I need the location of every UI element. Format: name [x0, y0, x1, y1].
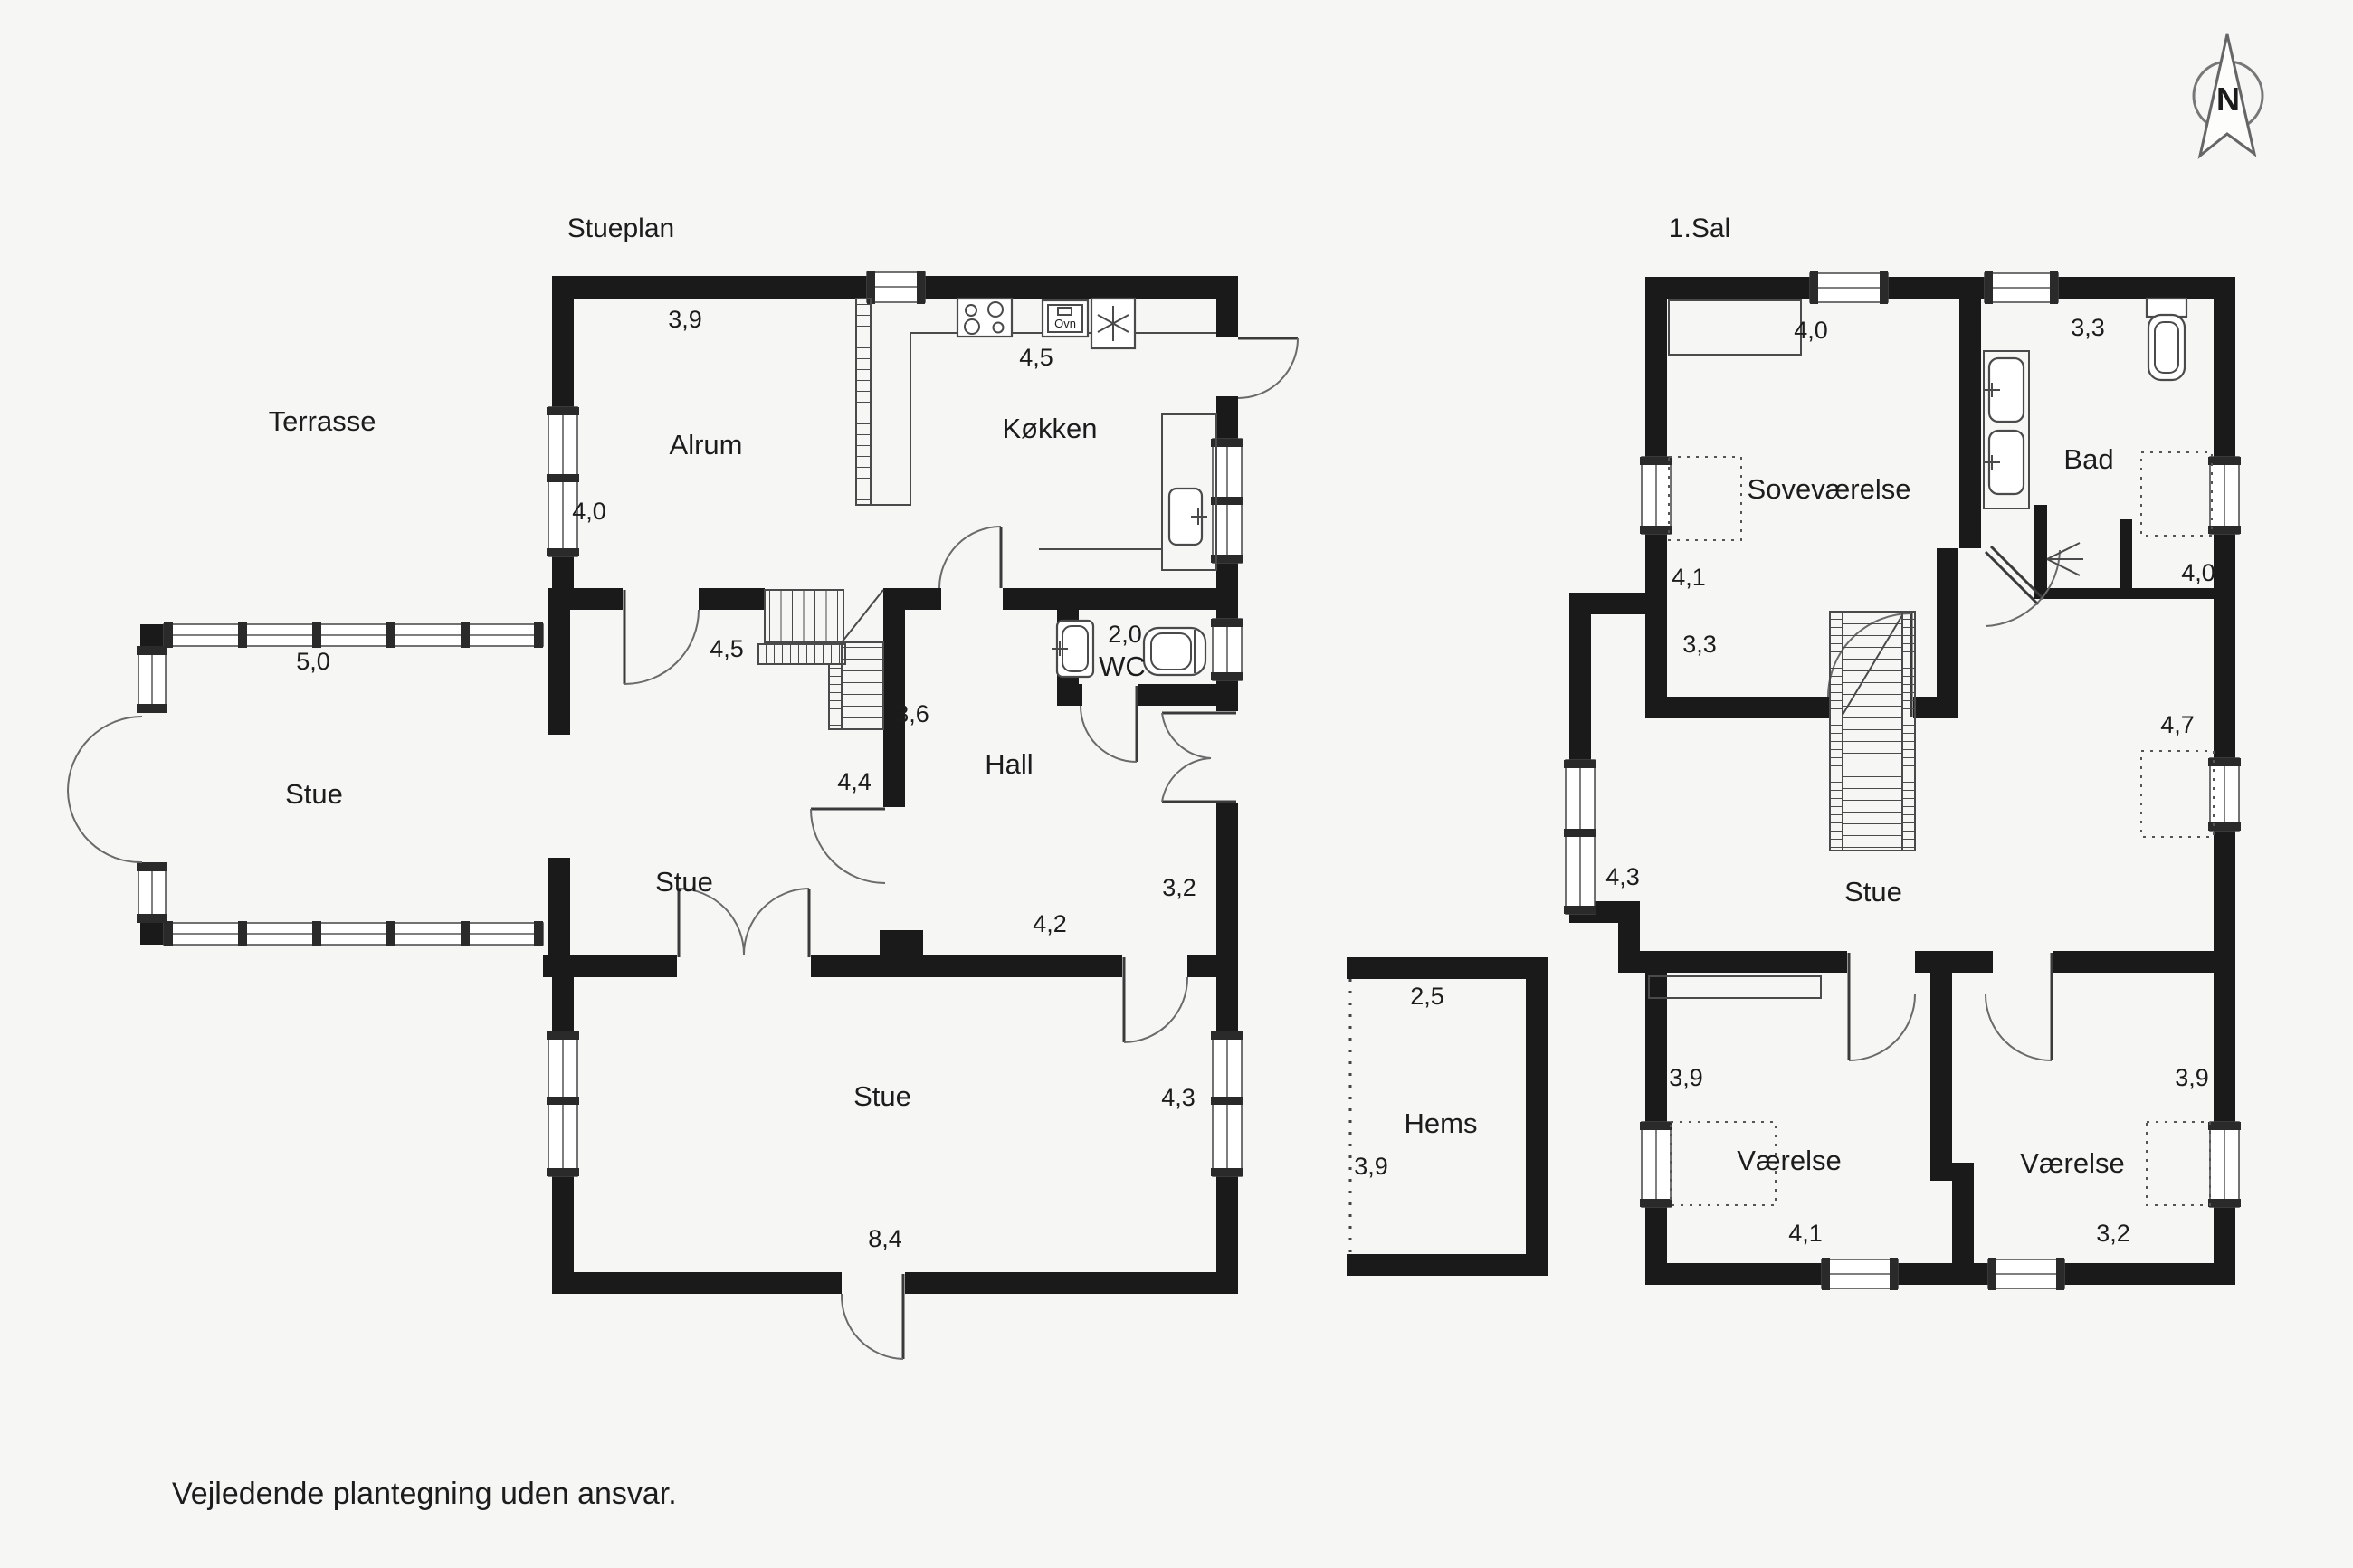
glass-stue-label: Stue	[285, 778, 343, 810]
dim-sove-top: 4,0	[1794, 317, 1828, 344]
dim-hall-bottom: 4,2	[1033, 910, 1067, 937]
floorplan-sheet: Stueplan 1.Sal Terrasse N	[0, 0, 2353, 1568]
terrasse-label: Terrasse	[269, 405, 376, 437]
terrace-double-door	[68, 717, 142, 862]
hall-label: Hall	[985, 748, 1033, 780]
skylight-bad	[2141, 452, 2212, 536]
door-kitchen-inner	[939, 527, 1003, 610]
shelf-divider	[856, 299, 871, 505]
stairs-sal	[1830, 612, 1915, 851]
door-vaerelse-left	[1847, 951, 1915, 1060]
bad-toilet-icon	[2147, 299, 2186, 380]
dim-bottom-stue: 8,4	[868, 1225, 902, 1252]
vaerelse-right-label: Værelse	[2020, 1147, 2124, 1179]
glass-stue-window-band-top	[164, 622, 543, 648]
window-sal-stue-left	[1564, 760, 1596, 914]
oven-icon: Ovn	[1043, 300, 1088, 337]
double-door-stue	[677, 889, 811, 977]
dim-hems-left: 3,9	[1354, 1153, 1388, 1180]
dim-glass-top: 5,0	[296, 648, 330, 675]
window-kitchen-top	[867, 271, 925, 304]
stueplan-title: Stueplan	[567, 214, 674, 243]
floorplan-drawing: Stueplan 1.Sal Terrasse N	[0, 0, 2353, 1568]
front-double-door	[1162, 711, 1238, 803]
sove-label: Soveværelse	[1748, 473, 1911, 505]
wc-label: WC	[1099, 651, 1146, 682]
mid-stue-label: Stue	[655, 866, 713, 898]
hems-label: Hems	[1405, 1107, 1478, 1139]
sal-title: 1.Sal	[1669, 214, 1730, 243]
dim-alrum-top: 3,9	[668, 306, 702, 333]
dim-bottom-stue-right: 4,3	[1161, 1084, 1196, 1111]
bad-label: Bad	[2063, 443, 2113, 475]
door-wc	[1081, 684, 1138, 762]
hems-plan: 2,5 Hems 3,9	[1347, 957, 1548, 1276]
dim-hems-top: 2,5	[1410, 983, 1444, 1010]
dim-vaerelse-left-bottom: 4,1	[1788, 1220, 1823, 1247]
north-arrow-icon: N	[2194, 34, 2262, 156]
kokken-label: Køkken	[1002, 413, 1097, 444]
dim-kokken-top: 4,5	[1019, 344, 1053, 371]
sove-closet	[1669, 300, 1801, 355]
vaerelse-left-label: Værelse	[1737, 1145, 1841, 1176]
fridge-icon	[1091, 299, 1135, 348]
dim-sove-left: 4,1	[1672, 564, 1706, 591]
dim-sal-stue-left: 4,3	[1605, 863, 1640, 890]
window-sove-left	[1640, 457, 1672, 534]
window-wc-right	[1211, 619, 1243, 680]
oven-label: Ovn	[1054, 317, 1076, 330]
dim-bad-top: 3,3	[2071, 314, 2105, 341]
window-alrum-left	[547, 407, 579, 556]
alrum-label: Alrum	[670, 429, 743, 461]
kitchen-sink-icon	[1162, 414, 1216, 570]
glass-stue-window-band-bottom	[164, 921, 543, 946]
north-label: N	[2216, 81, 2240, 118]
dim-sal-stue-right: 4,7	[2160, 711, 2195, 738]
dim-stair: 3,6	[895, 700, 929, 727]
door-bottom-stue-exterior	[842, 1272, 905, 1359]
toilet-icon	[1144, 628, 1205, 675]
door-vaerelse-right	[1986, 951, 2053, 1060]
window-bad-right	[2208, 457, 2241, 534]
skylight-sove	[1669, 457, 1741, 540]
door-kitchen-exterior	[1216, 337, 1298, 398]
dim-vaerelse-left-top: 3,9	[1669, 1064, 1703, 1091]
skylight-stue	[2141, 751, 2214, 837]
dim-stue-mid-top: 4,5	[710, 635, 744, 662]
stairs-ground	[758, 590, 883, 729]
glass-stue-window-band-left	[137, 646, 167, 923]
door-alrum-to-stue	[623, 588, 699, 684]
window-bottom-stue-right	[1211, 1031, 1243, 1176]
dim-alrum-left: 4,0	[572, 498, 606, 525]
door-hall-to-bottom-stue	[1122, 955, 1187, 1042]
window-vaerelse-right-bottom	[1988, 1258, 2064, 1290]
window-vaerelse-right	[2208, 1122, 2241, 1207]
window-bad-top	[1985, 271, 2058, 304]
window-bottom-stue-left	[547, 1031, 579, 1176]
window-vaerelse-left	[1640, 1122, 1672, 1207]
dim-wc: 2,0	[1108, 621, 1142, 648]
dim-hall-right: 3,2	[1162, 874, 1196, 901]
dim-vaerelse-right-bottom: 3,2	[2096, 1220, 2130, 1247]
bad-double-sink-icon	[1984, 351, 2029, 508]
dim-stue-mid: 4,4	[837, 768, 872, 795]
skylight-vaerelse-right	[2147, 1122, 2210, 1205]
dim-bad-right: 4,0	[2181, 559, 2215, 586]
dim-sal-stue-topleft: 3,3	[1682, 631, 1717, 658]
cooktop-icon	[957, 299, 1012, 337]
window-sove-top	[1810, 271, 1888, 304]
window-vaerelse-left-bottom	[1822, 1258, 1898, 1290]
dim-vaerelse-right-top: 3,9	[2175, 1064, 2209, 1091]
disclaimer-text: Vejledende plantegning uden ansvar.	[172, 1477, 677, 1511]
vaerelse-closet	[1649, 976, 1821, 998]
wc-sink-icon	[1052, 621, 1093, 677]
door-stue-hall	[811, 807, 905, 883]
bottom-stue-label: Stue	[853, 1080, 911, 1112]
sal-stue-label: Stue	[1844, 876, 1902, 908]
coat-hook-icon	[2034, 541, 2083, 577]
